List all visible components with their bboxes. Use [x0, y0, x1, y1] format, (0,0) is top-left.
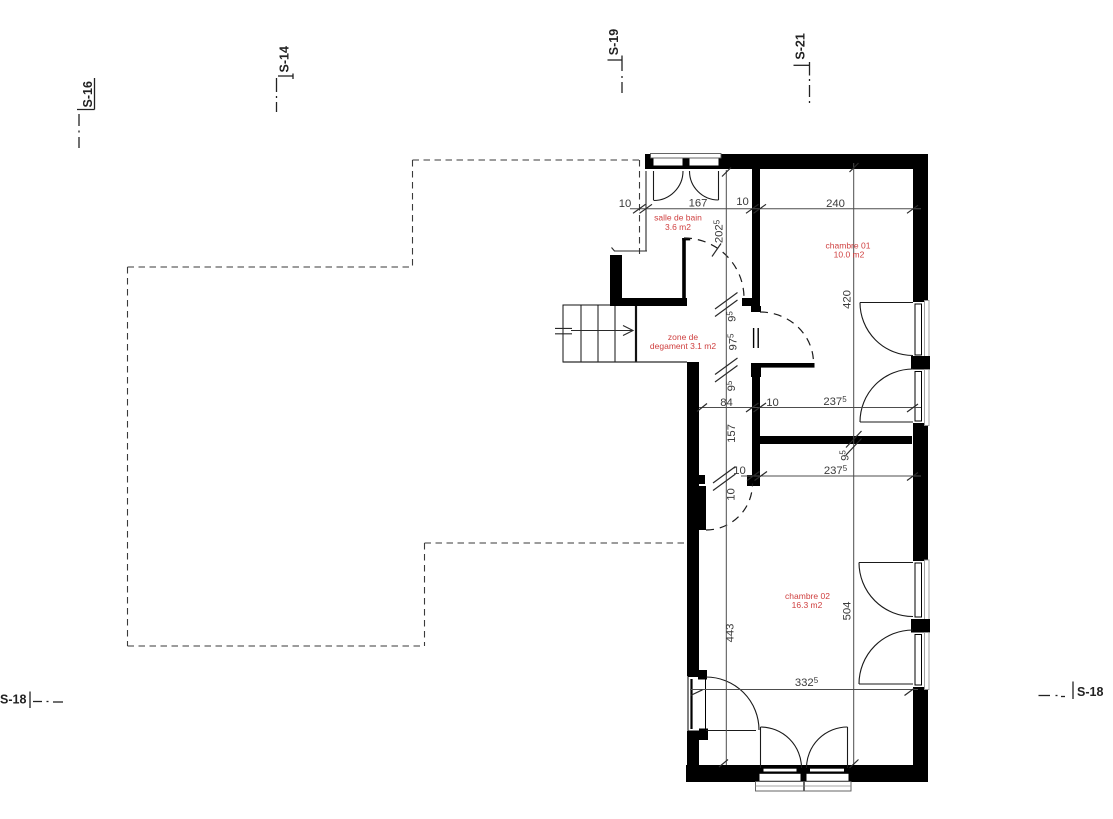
- svg-text:S-16: S-16: [81, 81, 95, 107]
- svg-text:10: 10: [619, 198, 632, 210]
- svg-text:10.0 m2: 10.0 m2: [834, 250, 865, 260]
- svg-text:157: 157: [726, 424, 738, 443]
- svg-text:S-18: S-18: [0, 693, 26, 707]
- svg-text:443: 443: [725, 624, 737, 643]
- svg-text:420: 420: [842, 290, 854, 309]
- svg-text:504: 504: [842, 602, 854, 621]
- svg-text:S-18: S-18: [1077, 685, 1103, 699]
- svg-text:10: 10: [736, 196, 749, 208]
- svg-text:S-21: S-21: [794, 33, 808, 59]
- svg-text:S-19: S-19: [607, 29, 621, 55]
- svg-text:167: 167: [689, 198, 708, 210]
- svg-text:degament 3.1 m2: degament 3.1 m2: [650, 341, 716, 351]
- svg-text:3.6 m2: 3.6 m2: [665, 222, 691, 232]
- svg-text:10: 10: [766, 397, 779, 409]
- svg-text:S-14: S-14: [278, 46, 292, 72]
- svg-text:16.3 m2: 16.3 m2: [792, 600, 823, 610]
- svg-text:240: 240: [826, 198, 845, 210]
- svg-text:10: 10: [726, 488, 738, 501]
